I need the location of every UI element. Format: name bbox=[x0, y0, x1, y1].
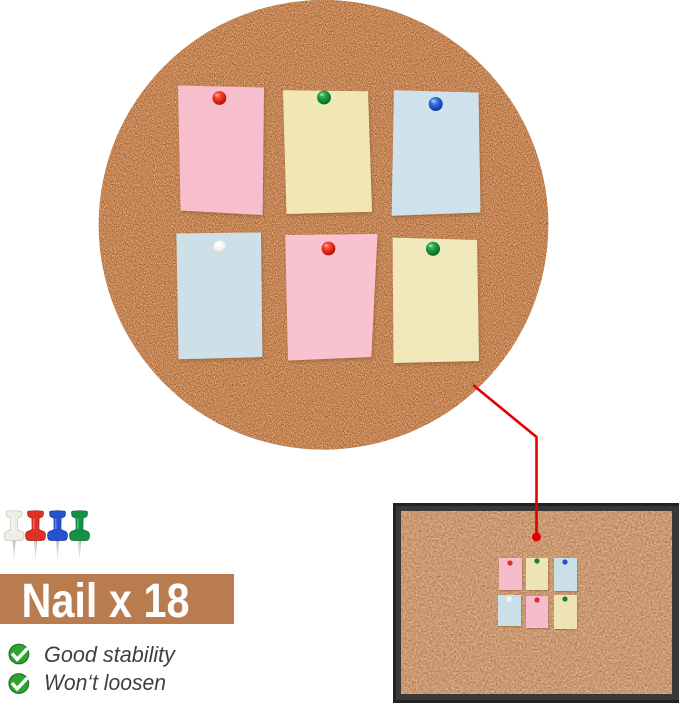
svg-text:Won‘t loosen: Won‘t loosen bbox=[44, 670, 166, 695]
svg-text:Good stability: Good stability bbox=[44, 642, 177, 667]
svg-text:Nail x 18: Nail x 18 bbox=[22, 575, 190, 628]
